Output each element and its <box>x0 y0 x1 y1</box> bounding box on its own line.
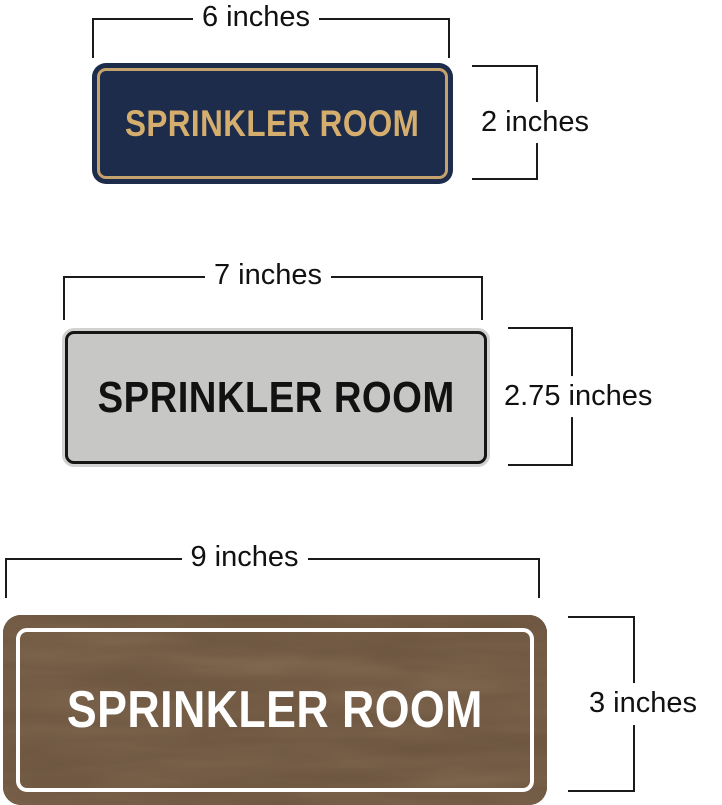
dim-height-navy-bracket: 2 inches <box>472 65 538 180</box>
dim-width-silver-label: 7 inches <box>205 258 331 294</box>
dim-height-silver-label: 2.75 inches <box>498 376 658 418</box>
dim-width-silver-bracket: 7 inches <box>63 276 483 320</box>
dim-width-navy-label: 6 inches <box>193 0 319 36</box>
dim-width-walnut-bracket: 9 inches <box>5 558 540 598</box>
sign-navy-6x2: SPRINKLER ROOM <box>92 63 453 184</box>
sign-silver-7x275: SPRINKLER ROOM <box>62 328 490 467</box>
dim-width-navy-bracket: 6 inches <box>92 18 450 58</box>
dim-height-walnut-bracket: 3 inches <box>568 616 635 792</box>
dim-height-navy-label: 2 inches <box>475 102 595 144</box>
sign-navy-text: SPRINKLER ROOM <box>125 103 419 145</box>
dim-height-walnut-label: 3 inches <box>583 683 703 725</box>
dim-height-silver-bracket: 2.75 inches <box>508 327 573 466</box>
product-dimension-diagram: 6 inches 2 inches SPRINKLER ROOM 7 inche… <box>0 0 722 805</box>
sign-silver-text: SPRINKLER ROOM <box>97 373 454 423</box>
sign-walnut-9x3: SPRINKLER ROOM <box>3 615 547 805</box>
dim-width-walnut-label: 9 inches <box>181 540 307 576</box>
sign-walnut-text: SPRINKLER ROOM <box>67 680 483 740</box>
